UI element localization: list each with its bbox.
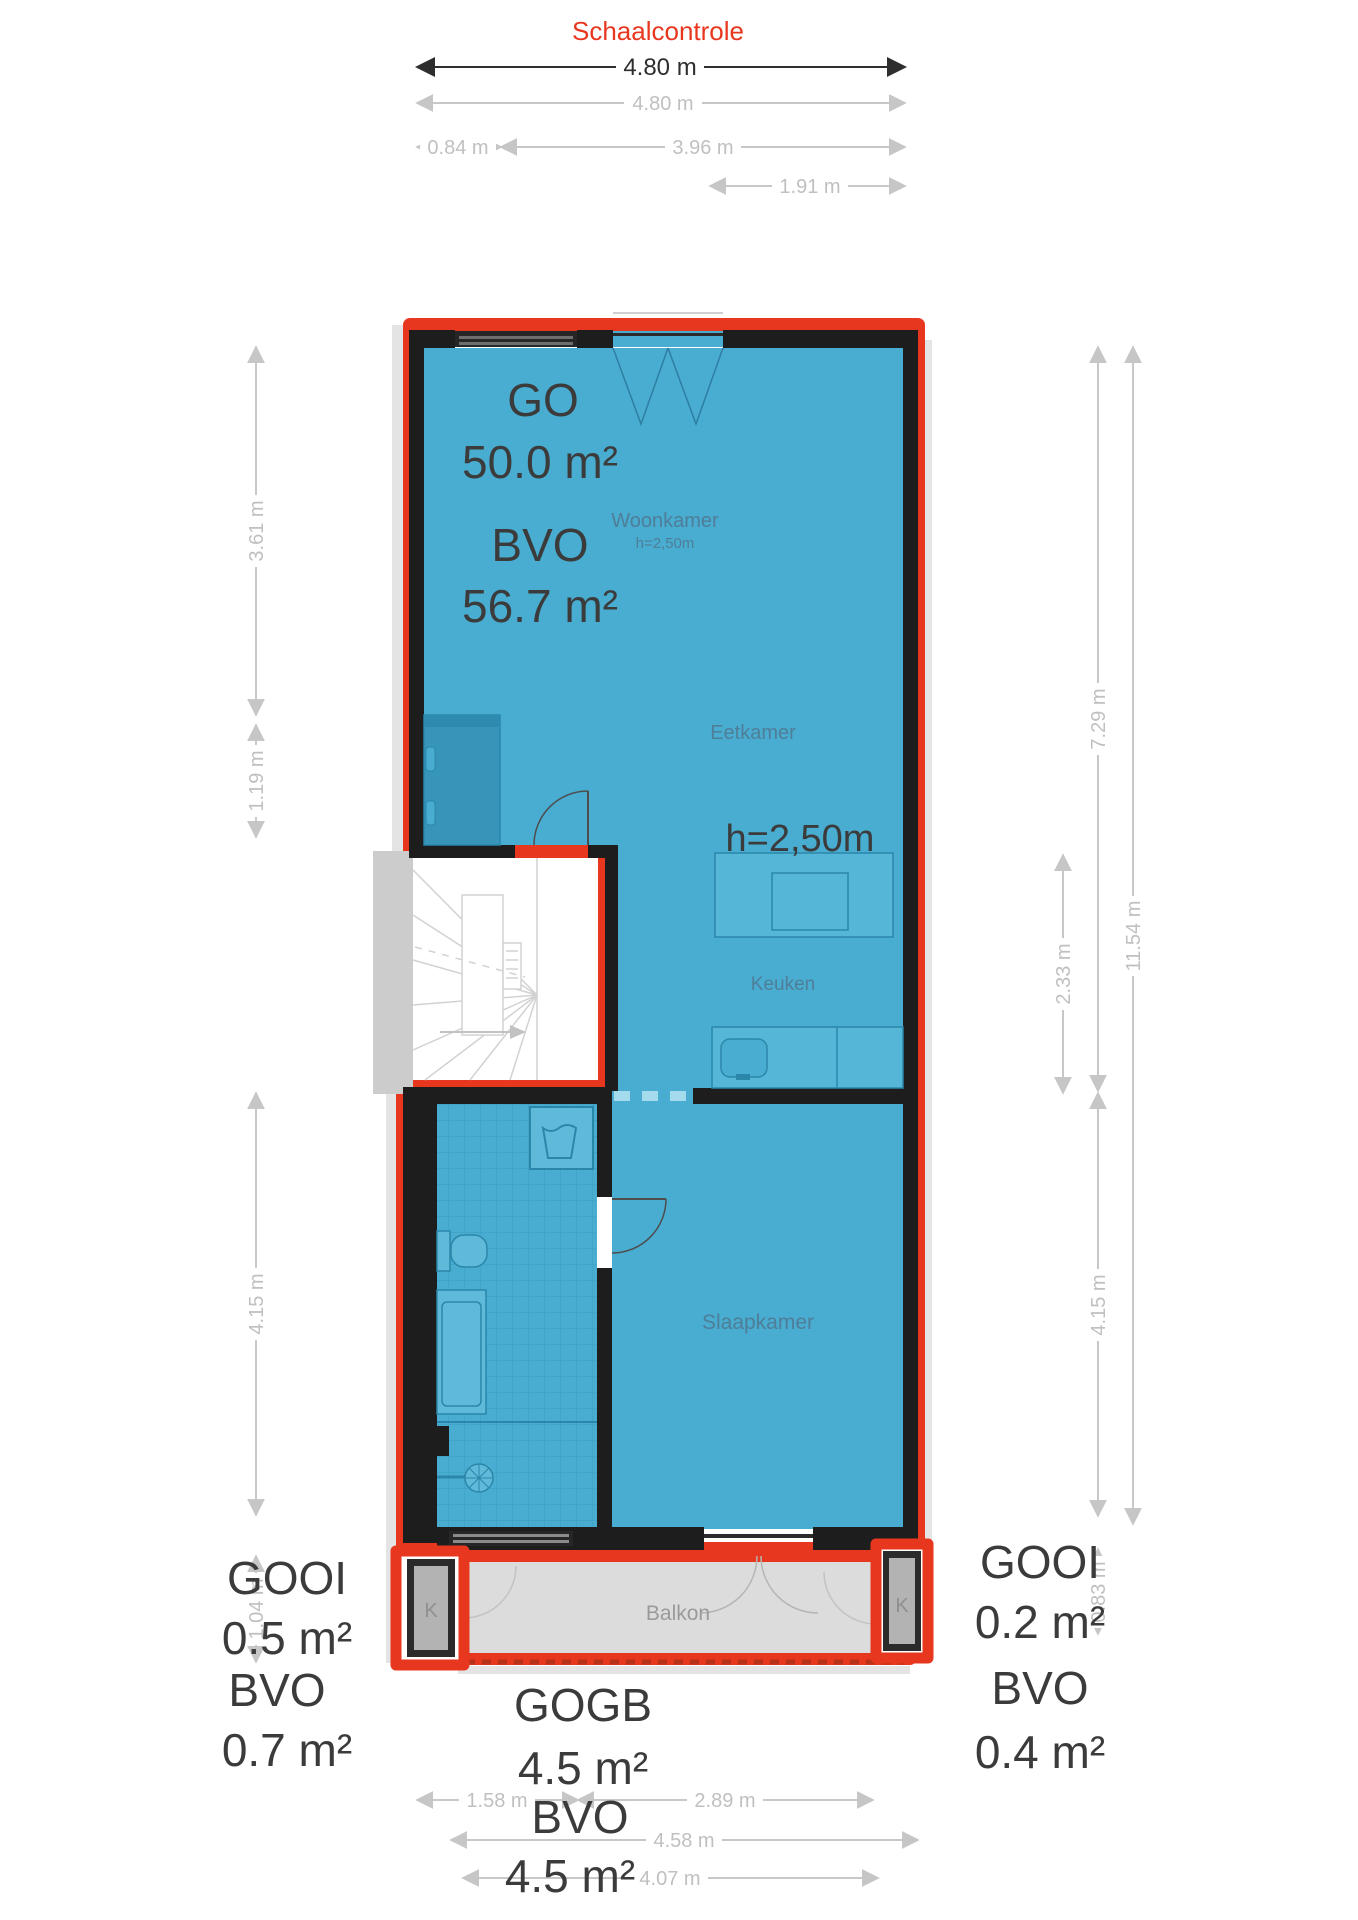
stairwell-wall (373, 851, 413, 1094)
right-gooi-value: 0.2 m² (975, 1596, 1105, 1648)
area-go-value: 50.0 m² (462, 436, 618, 488)
closet-right-label: K (895, 1595, 909, 1617)
balcony-gogb-label: GOGB (514, 1679, 652, 1731)
dimension-label: 1.19 m (246, 750, 268, 811)
balcony-bvo-value: 4.5 m² (505, 1850, 635, 1902)
left-bvo-label: BVO (228, 1664, 325, 1716)
room-label-woonkamer: Woonkamer (611, 510, 719, 532)
room-label-keuken: Keuken (751, 974, 815, 995)
dimension-label: 4.15 m (1088, 1274, 1110, 1335)
right-bvo-label: BVO (991, 1662, 1088, 1714)
dimension-label: 11.54 m (1123, 901, 1145, 972)
dimension-label: 4.80 m (623, 54, 696, 81)
dimension-label: 4.15 m (246, 1273, 268, 1334)
balcony-door-threshold (700, 1534, 817, 1538)
area-bvo-value: 56.7 m² (462, 580, 618, 632)
room-label-slaapkamer: Slaapkamer (702, 1311, 814, 1334)
toilet-icon (437, 1231, 450, 1271)
dimension-label: 3.61 m (246, 500, 268, 561)
right-bvo-value: 0.4 m² (975, 1726, 1105, 1778)
dimension-label: 4.58 m (653, 1830, 714, 1852)
cooktop-icon (772, 873, 848, 930)
bottom-dimensions: 1.58 m 2.89 m 4.58 m 4.07 m (417, 1788, 918, 1890)
top-dimensions: Schaalcontrole 4.80 m 4.80 m 0.84 m 3.96… (417, 16, 905, 198)
balcony-gogb-value: 4.5 m² (518, 1742, 648, 1794)
floorplan-page: Schaalcontrole 4.80 m 4.80 m 0.84 m 3.96… (0, 0, 1358, 1920)
left-gooi-value: 0.5 m² (222, 1612, 352, 1664)
dimension-label: 7.29 m (1088, 688, 1110, 749)
washing-machine-icon (530, 1107, 593, 1169)
ceiling-height-label: h=2,50m (726, 818, 875, 860)
right-dimensions: 2.33 m 7.29 m 4.15 m 0.83 m 11.54 m (1051, 347, 1145, 1634)
room-label-woonkamer-height: h=2,50m (636, 535, 695, 552)
dimension-label: 1.91 m (779, 176, 840, 198)
room-label-balkon: Balkon (646, 1602, 710, 1625)
dimension-label: 4.80 m (632, 93, 693, 115)
dimension-label: 3.96 m (672, 137, 733, 159)
dimension-label: 4.07 m (639, 1868, 700, 1890)
bathroom-window-icon (449, 1531, 573, 1546)
dimension-label: 2.89 m (694, 1790, 755, 1812)
left-bvo-value: 0.7 m² (222, 1724, 352, 1776)
left-dimensions: 3.61 m 1.19 m 4.15 m 1.04 m (244, 347, 268, 1662)
area-go-label: GO (507, 374, 579, 426)
schaalcontrole-label: Schaalcontrole (572, 16, 744, 46)
closet-left-label: K (424, 1600, 438, 1622)
floorplan-canvas: Schaalcontrole 4.80 m 4.80 m 0.84 m 3.96… (0, 0, 1358, 1920)
area-bvo-label: BVO (491, 519, 588, 571)
room-label-eetkamer: Eetkamer (710, 722, 796, 744)
sink-icon (721, 1039, 767, 1077)
dimension-label: 2.33 m (1053, 943, 1075, 1004)
right-gooi-label: GOOI (980, 1536, 1100, 1588)
bathtub-icon (437, 1290, 486, 1414)
stairwell (373, 851, 598, 1094)
left-gooi-label: GOOI (227, 1552, 347, 1604)
balcony-bvo-label: BVO (531, 1791, 628, 1843)
dimension-label: 0.84 m (427, 137, 488, 159)
cabinet (424, 715, 500, 845)
